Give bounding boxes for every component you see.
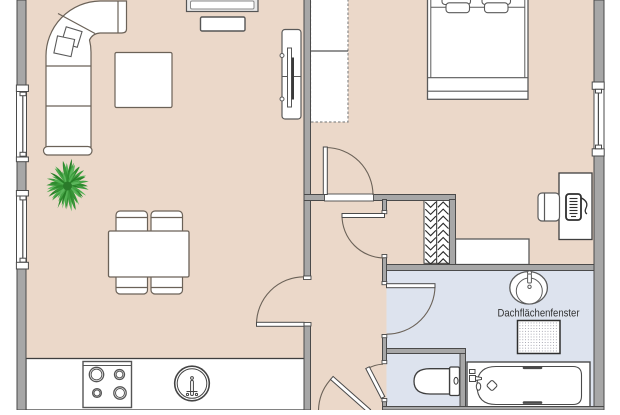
svg-text:Dachflächenfenster: Dachflächenfenster [498, 308, 580, 320]
